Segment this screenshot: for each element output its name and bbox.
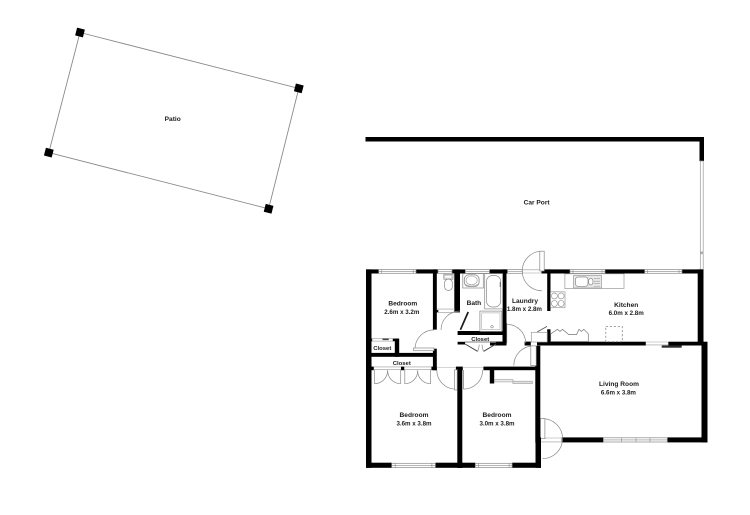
svg-text:Car Port: Car Port [524,200,551,207]
svg-text:Bedroom: Bedroom [483,412,512,419]
svg-text:Closet: Closet [471,337,489,343]
svg-text:3.0m x 3.8m: 3.0m x 3.8m [479,421,515,428]
svg-text:Kitchen: Kitchen [614,302,638,309]
svg-text:Living Room: Living Room [599,381,639,388]
svg-text:6.6m x 3.8m: 6.6m x 3.8m [601,390,637,397]
svg-text:Closet: Closet [373,346,391,352]
svg-text:Bedroom: Bedroom [400,412,429,419]
svg-text:Bath: Bath [467,300,482,307]
svg-text:3.6m x 3.8m: 3.6m x 3.8m [396,421,432,428]
svg-text:Patio: Patio [165,116,181,123]
svg-text:Laundry: Laundry [512,298,538,305]
svg-text:Closet: Closet [393,361,411,367]
svg-text:1.8m x 2.8m: 1.8m x 2.8m [507,306,543,313]
svg-text:2.6m x 3.2m: 2.6m x 3.2m [384,309,420,316]
svg-text:Bedroom: Bedroom [388,300,417,307]
svg-text:6.0m x 2.8m: 6.0m x 2.8m [609,310,645,317]
